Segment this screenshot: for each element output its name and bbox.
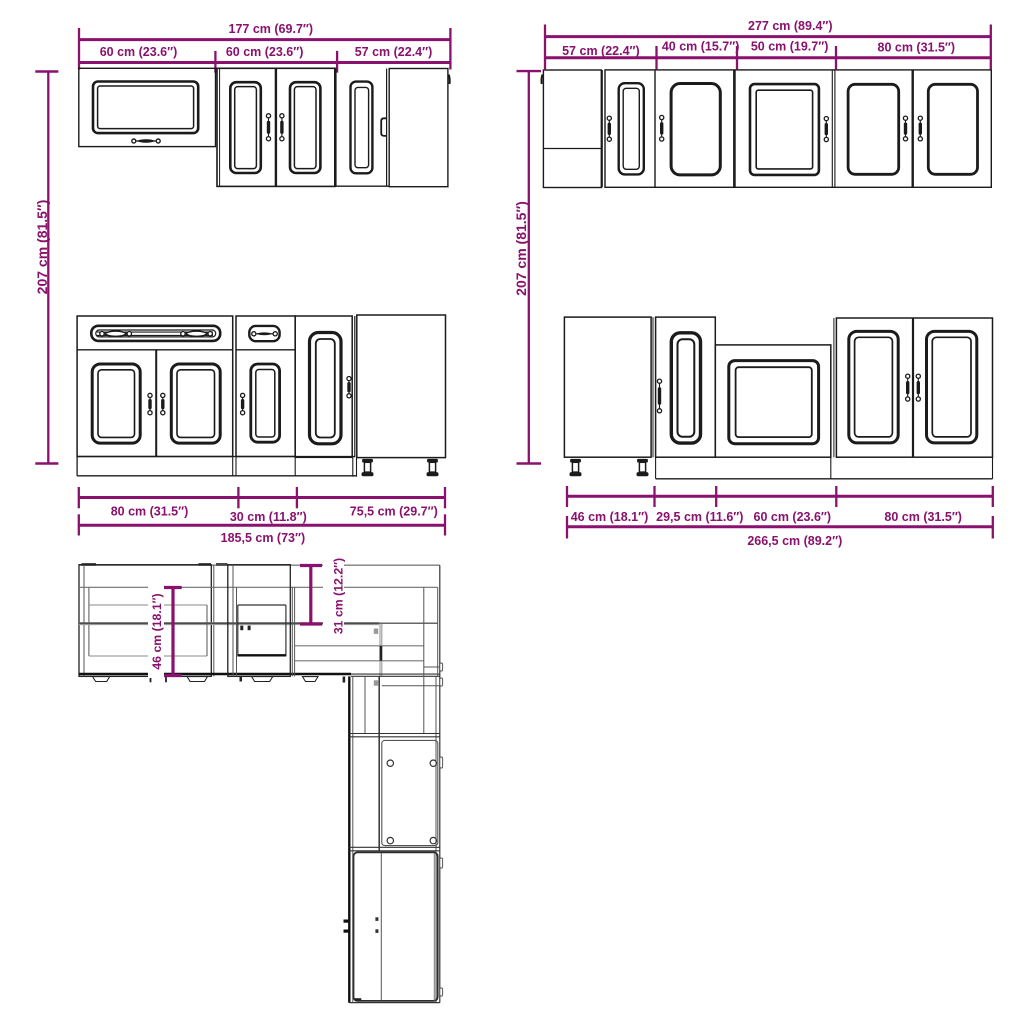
svg-text:277 cm (89.4″): 277 cm (89.4″) <box>748 19 833 33</box>
svg-text:75,5 cm (29.7″): 75,5 cm (29.7″) <box>350 504 438 518</box>
svg-text:40 cm (15.7″): 40 cm (15.7″) <box>662 40 740 54</box>
svg-text:46 cm (18.1″): 46 cm (18.1″) <box>571 510 649 524</box>
svg-text:60 cm (23.6″): 60 cm (23.6″) <box>754 510 832 524</box>
svg-text:30 cm (11.8″): 30 cm (11.8″) <box>230 510 307 524</box>
svg-text:177 cm (69.7″): 177 cm (69.7″) <box>229 22 314 36</box>
svg-text:60 cm (23.6″): 60 cm (23.6″) <box>100 45 178 59</box>
svg-text:185,5 cm (73″): 185,5 cm (73″) <box>221 531 306 545</box>
svg-text:266,5 cm (89.2″): 266,5 cm (89.2″) <box>747 534 842 548</box>
svg-text:60 cm (23.6″): 60 cm (23.6″) <box>226 45 304 59</box>
svg-text:29,5 cm (11.6″): 29,5 cm (11.6″) <box>656 510 743 524</box>
svg-text:46 cm (18.1″): 46 cm (18.1″) <box>150 593 164 669</box>
svg-text:31 cm (12.2″): 31 cm (12.2″) <box>332 558 346 634</box>
svg-text:57 cm (22.4″): 57 cm (22.4″) <box>562 44 640 58</box>
svg-text:207 cm (81.5″): 207 cm (81.5″) <box>513 201 529 296</box>
svg-text:80 cm (31.5″): 80 cm (31.5″) <box>111 504 189 518</box>
svg-text:207 cm (81.5″): 207 cm (81.5″) <box>34 200 50 295</box>
svg-text:80 cm (31.5″): 80 cm (31.5″) <box>884 510 962 524</box>
svg-text:57 cm (22.4″): 57 cm (22.4″) <box>355 45 433 59</box>
svg-text:80 cm (31.5″): 80 cm (31.5″) <box>878 41 956 55</box>
svg-text:50 cm (19.7″): 50 cm (19.7″) <box>751 40 829 54</box>
